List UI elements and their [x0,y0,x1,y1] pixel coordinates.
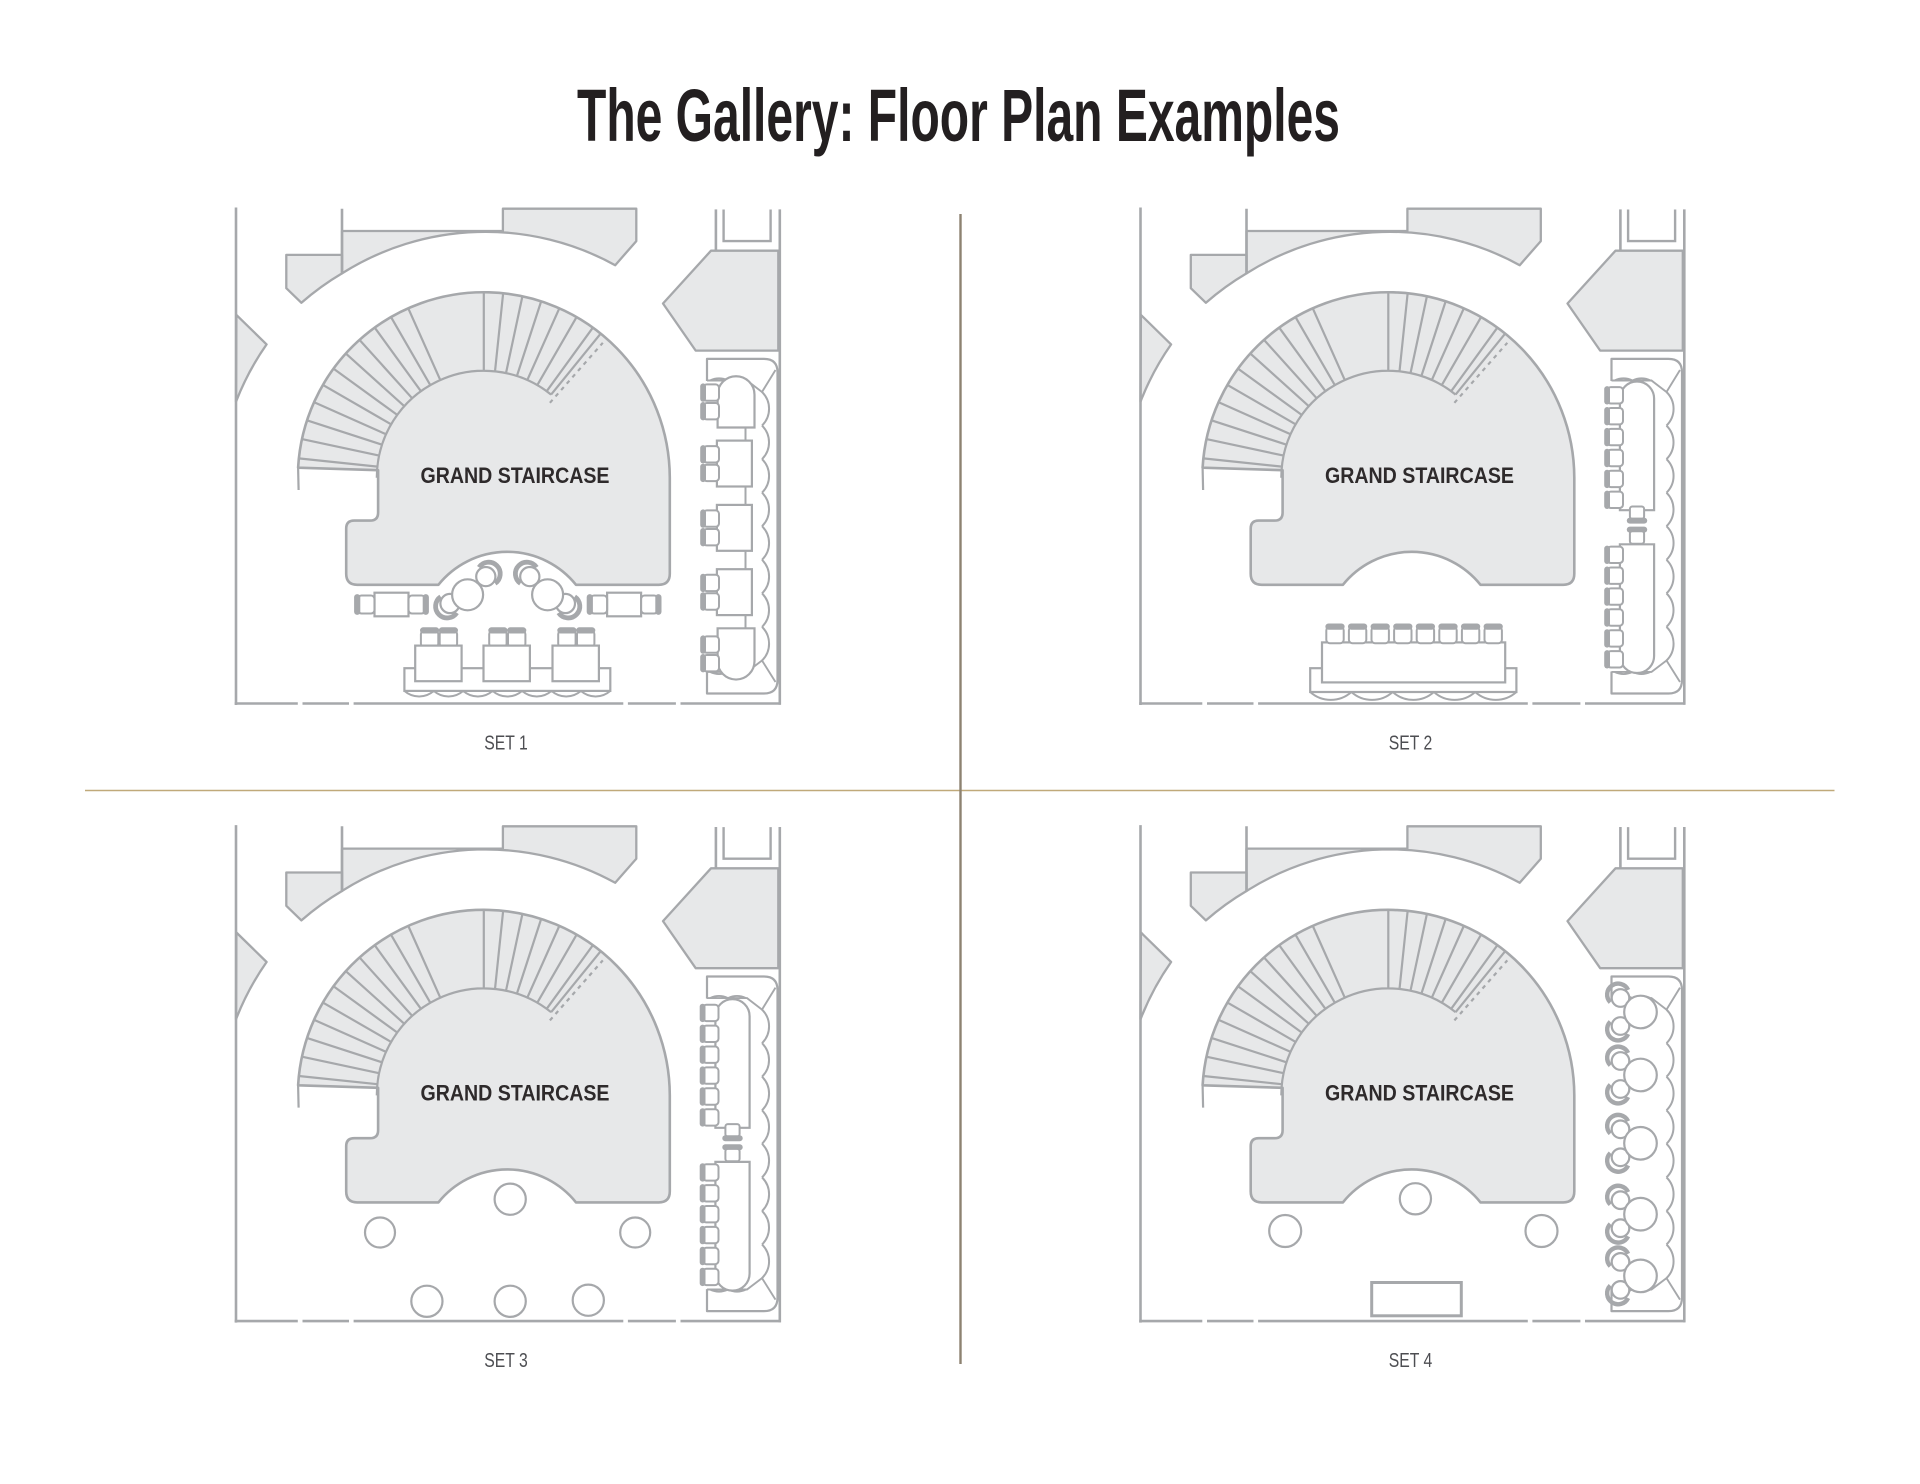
svg-text:SET 4: SET 4 [1389,1349,1433,1372]
svg-text:SET 1: SET 1 [484,732,528,755]
svg-text:SET 3: SET 3 [484,1349,528,1372]
svg-text:The Gallery: Floor Plan Exampl: The Gallery: Floor Plan Examples [577,74,1340,157]
svg-text:SET 2: SET 2 [1389,732,1433,755]
